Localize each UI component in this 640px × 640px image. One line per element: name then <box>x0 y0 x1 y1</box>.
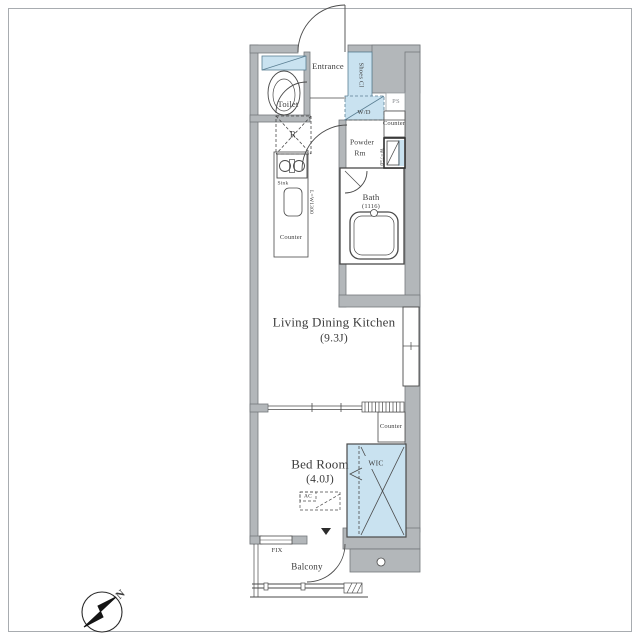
bedroom-label: Bed Room <box>291 458 349 471</box>
bath-label: Bath <box>363 193 380 202</box>
bedroom-counter-label: Counter <box>380 424 402 431</box>
entrance-door-arc <box>298 5 345 52</box>
toilet-label: Toilet <box>278 100 299 109</box>
fix-window <box>260 536 292 544</box>
entrance-label: Entrance <box>312 62 344 71</box>
powder-counter-label: Counter <box>383 121 405 128</box>
door-marker-triangle <box>321 528 331 535</box>
powder-room-label-2: Rm <box>354 149 365 157</box>
ac-label: AC <box>304 494 312 500</box>
washer-dryer-label: W/D <box>357 110 370 117</box>
bedroom-size-label: (4.0J) <box>306 474 334 486</box>
ldk-label: Living Dining Kitchen <box>273 316 396 329</box>
compass-icon <box>82 592 122 632</box>
sink-basin <box>284 188 302 216</box>
powder-room-label-1: Powder <box>350 138 374 146</box>
floorplan-page: Toilet Entrance Shoes Cl W/D PS Counter … <box>0 0 640 640</box>
kitchen-counter-label: Counter <box>280 235 302 242</box>
wic-label: WIC <box>368 459 383 467</box>
fix-window-label: FIX <box>271 548 282 555</box>
vanity-dim-label: W=750 <box>377 148 383 166</box>
shoes-closet-label: Shoes Cl <box>357 63 364 88</box>
louver-strip <box>362 402 404 412</box>
bathtub-icon <box>350 210 398 260</box>
kitchen-dim-label: L=W1300 <box>307 190 313 214</box>
ldk-size-label: (9.3J) <box>320 333 348 345</box>
sink-label: Sink <box>278 181 289 187</box>
vanity-unit <box>384 138 405 168</box>
bath-size-label: (1116) <box>362 204 380 211</box>
refrigerator-label: R <box>290 131 296 140</box>
balcony-label: Balcony <box>291 563 322 572</box>
ldk-window <box>403 307 419 386</box>
balcony-drain-marker <box>377 558 385 566</box>
pipe-space-label: PS <box>392 99 400 106</box>
